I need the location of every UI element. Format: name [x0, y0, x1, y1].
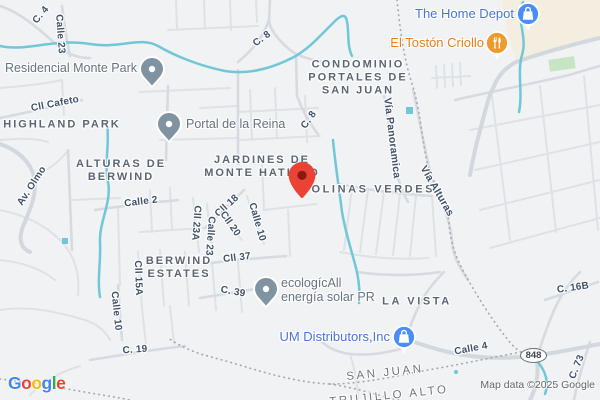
destination-pin-icon: [287, 161, 317, 199]
street-label: Cll 15A: [132, 260, 144, 296]
pond: [406, 107, 413, 114]
pond: [62, 238, 68, 244]
shopping-bag-icon: [391, 324, 417, 355]
google-logo: Google: [8, 373, 65, 394]
logo-letter: G: [8, 373, 21, 393]
logo-letter: e: [56, 373, 65, 393]
poi-label-portal-de-la-reina[interactable]: Portal de la Reina: [186, 118, 285, 132]
place-pin-portal-de-la-reina[interactable]: [156, 111, 182, 148]
poi-label-um-distributors[interactable]: UM Distributors,Inc: [279, 330, 390, 344]
restaurant-icon: [484, 30, 510, 61]
poi-label-residencial-monte-park[interactable]: Residencial Monte Park: [5, 62, 137, 76]
place-pin-icon: [253, 276, 279, 308]
place-pin-icon: [156, 111, 182, 143]
place-pin-icon: [139, 56, 165, 88]
poi-label-the-home-depot[interactable]: The Home Depot: [415, 7, 514, 21]
logo-letter: o: [31, 373, 41, 393]
area-label-highland-park: HIGHLAND PARK: [3, 119, 120, 132]
poi-label-el-toston-criollo[interactable]: El Tostón Criollo: [390, 36, 484, 50]
area-label-colinas-verdes: COLINAS VERDES: [301, 184, 435, 197]
shopping-pin-home-depot[interactable]: [515, 1, 541, 37]
route-shield-848: 848: [520, 348, 547, 363]
logo-letter: g: [42, 373, 52, 393]
shopping-bag-icon: [515, 1, 541, 32]
area-label-alturas-de-berwind: ALTURAS DE BERWIND: [76, 158, 166, 184]
destination-marker[interactable]: [287, 161, 317, 204]
place-pin-ecologicall[interactable]: [253, 276, 279, 313]
pond: [454, 370, 458, 374]
restaurant-pin-el-toston-criollo[interactable]: [484, 30, 510, 66]
poi-label-ecologicall-energia-solar[interactable]: ecologícAll energía solar PR: [281, 277, 375, 304]
logo-letter: o: [21, 373, 31, 393]
park-area: [548, 56, 575, 72]
street-label: C. 19: [122, 344, 148, 357]
major-roads: [0, 38, 600, 400]
shopping-pin-um-distributors[interactable]: [391, 324, 417, 360]
map-attribution: Map data ©2025 Google: [480, 379, 595, 391]
map-canvas[interactable]: HIGHLAND PARK ALTURAS DE BERWIND JARDINE…: [0, 0, 600, 400]
place-pin-residencial-monte-park[interactable]: [139, 56, 165, 93]
area-label-la-vista: LA VISTA: [382, 296, 452, 309]
area-label-berwind-estates: BERWIND ESTATES: [146, 255, 212, 281]
area-label-condominio-portales: CONDOMINIO PORTALES DE SAN JUAN: [308, 59, 407, 98]
